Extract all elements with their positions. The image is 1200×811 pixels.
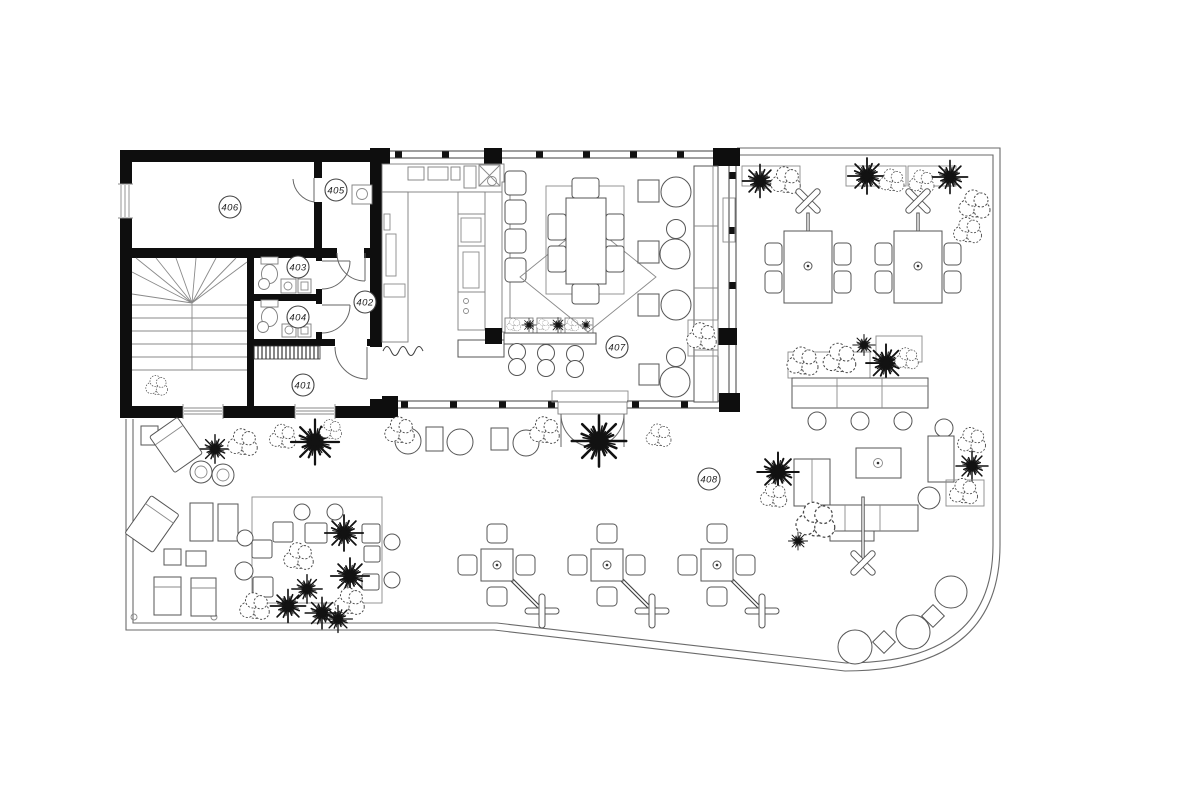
plant-bush-icon [269, 424, 295, 448]
room-number-401: 401 [294, 381, 311, 392]
plant-bush-icon [760, 483, 786, 507]
sun-lounger [154, 577, 181, 615]
dining-table [566, 198, 606, 284]
room-number-405: 405 [327, 186, 345, 197]
chair [707, 587, 727, 606]
floor-plan-page: 401 402 403 404 405 406 407 408 [0, 0, 1200, 811]
passage-to-kitchen [370, 347, 382, 399]
side-table [426, 427, 443, 451]
room-label-408: 408 [698, 468, 720, 490]
plant-bush-icon [646, 424, 671, 446]
side-table [186, 551, 206, 566]
chair [678, 555, 697, 575]
room-number-406: 406 [221, 203, 239, 214]
side-table [638, 180, 659, 202]
room-label-403: 403 [287, 256, 309, 278]
plant-bush-icon [687, 323, 716, 350]
chair [516, 555, 535, 575]
bar-stool [509, 344, 526, 361]
plant-spiky-icon [270, 590, 305, 623]
armchair [661, 290, 691, 320]
round-table [918, 487, 940, 509]
cantilever-table-2 [568, 524, 669, 628]
side-table [873, 631, 896, 654]
room-number-403: 403 [289, 263, 307, 274]
plant-bush-icon [958, 428, 986, 453]
plant-spiky-icon [292, 575, 322, 604]
room-number-402: 402 [356, 298, 374, 309]
kitchen [382, 164, 526, 342]
door-404 [322, 305, 350, 333]
facade-stool-row [395, 427, 539, 456]
room-405-sink [352, 185, 372, 204]
bean-bag [896, 615, 930, 649]
flex-connector [383, 347, 423, 356]
chair [572, 284, 599, 304]
chair [606, 214, 624, 240]
plant-bush-icon [771, 167, 800, 194]
bar-stool [509, 359, 526, 376]
chair [626, 555, 645, 575]
armchair [660, 239, 690, 269]
round-table [235, 562, 253, 580]
umbrella-x-icon [905, 188, 932, 215]
plant-bush-icon [240, 593, 269, 620]
lounger [218, 504, 238, 541]
cantilever-table-1 [458, 524, 559, 628]
plant-bush-icon [823, 343, 856, 372]
chair [487, 524, 507, 543]
chair-back [935, 419, 953, 437]
curve-pouf-row [838, 576, 967, 664]
side-table [639, 364, 659, 385]
floor-plan-canvas: 401 402 403 404 405 406 407 408 [0, 0, 1200, 811]
armchair [660, 367, 690, 397]
chair [944, 271, 961, 293]
staircase [132, 258, 247, 395]
room-number-404: 404 [289, 313, 306, 324]
door-402 [337, 253, 365, 281]
sun-lounger [191, 578, 216, 616]
chair [572, 178, 599, 198]
chair [606, 246, 624, 272]
plant-bush-icon [385, 417, 414, 444]
chair [487, 587, 507, 606]
bar-stool [567, 346, 584, 363]
pouf [252, 540, 272, 558]
terrace-post [131, 614, 137, 620]
bean-bag [838, 630, 872, 664]
chair [736, 555, 755, 575]
room-label-407: 407 [606, 336, 628, 358]
room-label-401: 401 [292, 374, 314, 396]
pouf [364, 546, 380, 562]
window-bottom-1 [183, 404, 223, 419]
bench [792, 378, 928, 408]
lounger [928, 436, 954, 482]
chair [597, 587, 617, 606]
garden-seating-cluster [235, 497, 400, 633]
chair [834, 271, 851, 293]
pouf [362, 524, 380, 543]
plant-bush-icon [530, 417, 559, 444]
plant-bush-icon [954, 218, 982, 243]
chair [707, 524, 727, 543]
pouf [190, 461, 212, 483]
chair [548, 214, 566, 240]
bean-bag [935, 576, 967, 608]
pouf [447, 429, 473, 455]
plant-bush-icon [335, 588, 364, 615]
chair [765, 243, 782, 265]
entrance-mat [254, 346, 320, 359]
room-label-404: 404 [287, 306, 309, 328]
armchair [661, 177, 691, 207]
plant-spiky-icon [200, 435, 230, 464]
round-table [384, 534, 400, 550]
room-label-405: 405 [325, 179, 347, 201]
window-bottom-2 [295, 404, 335, 419]
terrace-bench-group [787, 335, 928, 431]
room-number-408: 408 [700, 475, 718, 486]
umbrella-table-1 [765, 188, 851, 303]
side-table [638, 294, 659, 316]
plant-spiky-icon [932, 161, 967, 194]
side-table [638, 241, 659, 263]
plant-bush-icon [284, 543, 313, 570]
plant-spiky-icon [848, 158, 886, 194]
stool [808, 412, 826, 430]
chair [875, 243, 892, 265]
ottoman [667, 220, 686, 239]
chair [458, 555, 477, 575]
lounger [190, 503, 213, 541]
plant-bush-icon [228, 429, 257, 456]
wall-bench [694, 166, 718, 402]
plant-bush-icon [320, 420, 342, 440]
chair [765, 271, 782, 293]
umbrella-table-2 [875, 188, 961, 303]
round-table [327, 504, 343, 520]
bar-stool [538, 360, 555, 377]
umbrella-x-icon [795, 188, 822, 215]
round-table [237, 530, 253, 546]
plant-bush-icon [959, 190, 990, 218]
room-label-402: 402 [354, 291, 376, 313]
door-403 [322, 261, 350, 289]
pouf [273, 522, 293, 542]
side-table [491, 428, 508, 450]
plant-bush-icon [146, 376, 168, 396]
stool [851, 412, 869, 430]
side-table [164, 549, 181, 565]
ottoman [667, 348, 686, 367]
stool [894, 412, 912, 430]
plant-bush-icon [787, 347, 818, 375]
plant-bush-icon [879, 169, 904, 191]
round-table [384, 572, 400, 588]
chair [875, 271, 892, 293]
door-405 [293, 178, 314, 202]
plant-spiky-icon [956, 451, 988, 481]
bar-stool [538, 345, 555, 362]
chair [834, 243, 851, 265]
chair [597, 524, 617, 543]
plant-bush-icon [796, 502, 835, 537]
round-table [294, 504, 310, 520]
cantilever-table-3 [678, 524, 779, 628]
room-number-407: 407 [608, 343, 626, 354]
pouf [305, 523, 327, 543]
lounge-sofa-group [757, 448, 940, 576]
door-401 [335, 347, 367, 379]
chair [944, 243, 961, 265]
terrace-top-planters [742, 158, 990, 243]
plant-bush-icon [909, 170, 934, 192]
plant-spiky-icon [572, 416, 626, 467]
chair [568, 555, 587, 575]
plant-spiky-icon [325, 515, 363, 551]
bar-stool [567, 361, 584, 378]
pouf [212, 464, 234, 486]
room-label-406: 406 [219, 196, 241, 218]
window-left [118, 184, 133, 218]
chair [548, 246, 566, 272]
